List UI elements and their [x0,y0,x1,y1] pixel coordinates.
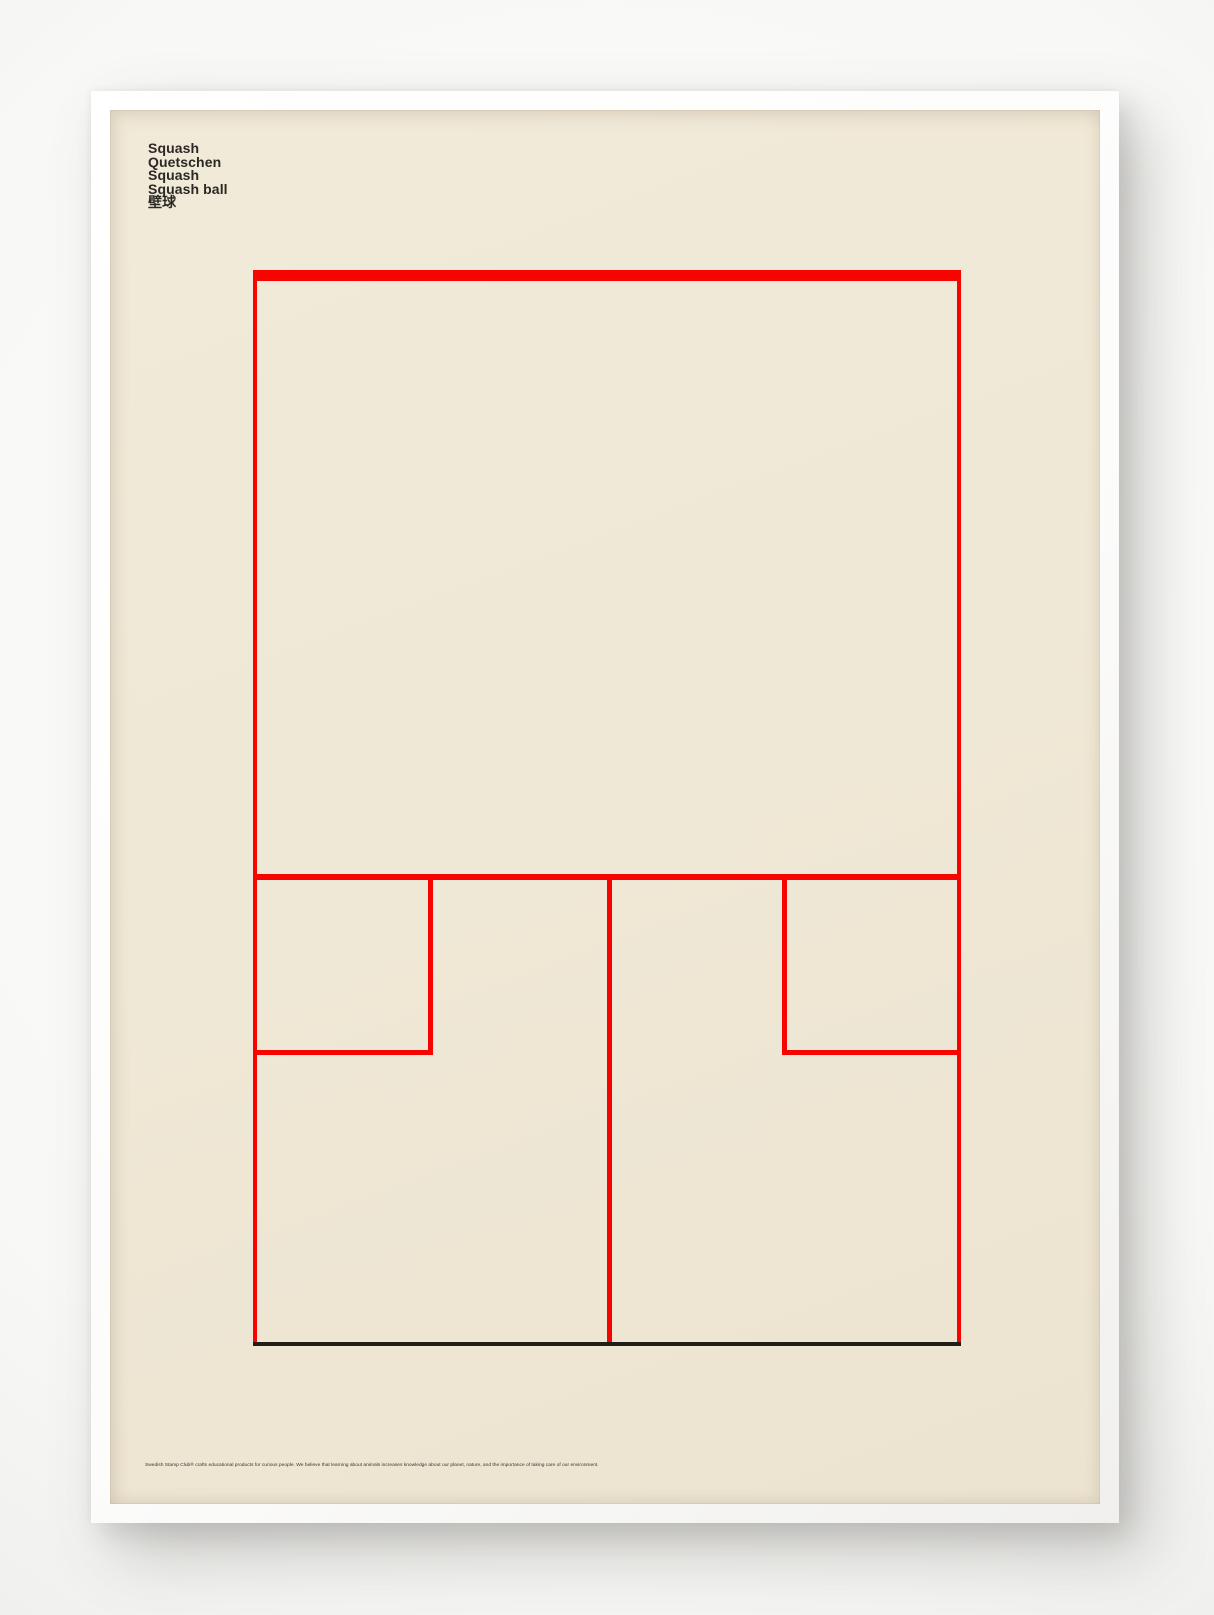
right-wall-line [957,270,961,1346]
left-service-box-right-line [428,874,433,1055]
right-service-box-bottom-line [782,1050,961,1055]
front-wall-out-line [253,270,961,281]
left-service-box-bottom-line [253,1050,433,1055]
half-court-line [607,874,612,1342]
left-wall-line [253,270,257,1346]
footer-text: Swedish Stamp Club® crafts educational p… [145,1462,625,1467]
poster-paper: Squash Quetschen Squash Squash ball 壁球 S… [110,110,1100,1504]
right-service-box-left-line [782,874,787,1055]
back-wall-line [253,1342,961,1346]
photo-background: { "poster": { "title_lines": ["Squash", … [0,0,1214,1615]
squash-court-diagram [110,110,1100,1504]
poster-frame: Squash Quetschen Squash Squash ball 壁球 S… [91,91,1119,1523]
